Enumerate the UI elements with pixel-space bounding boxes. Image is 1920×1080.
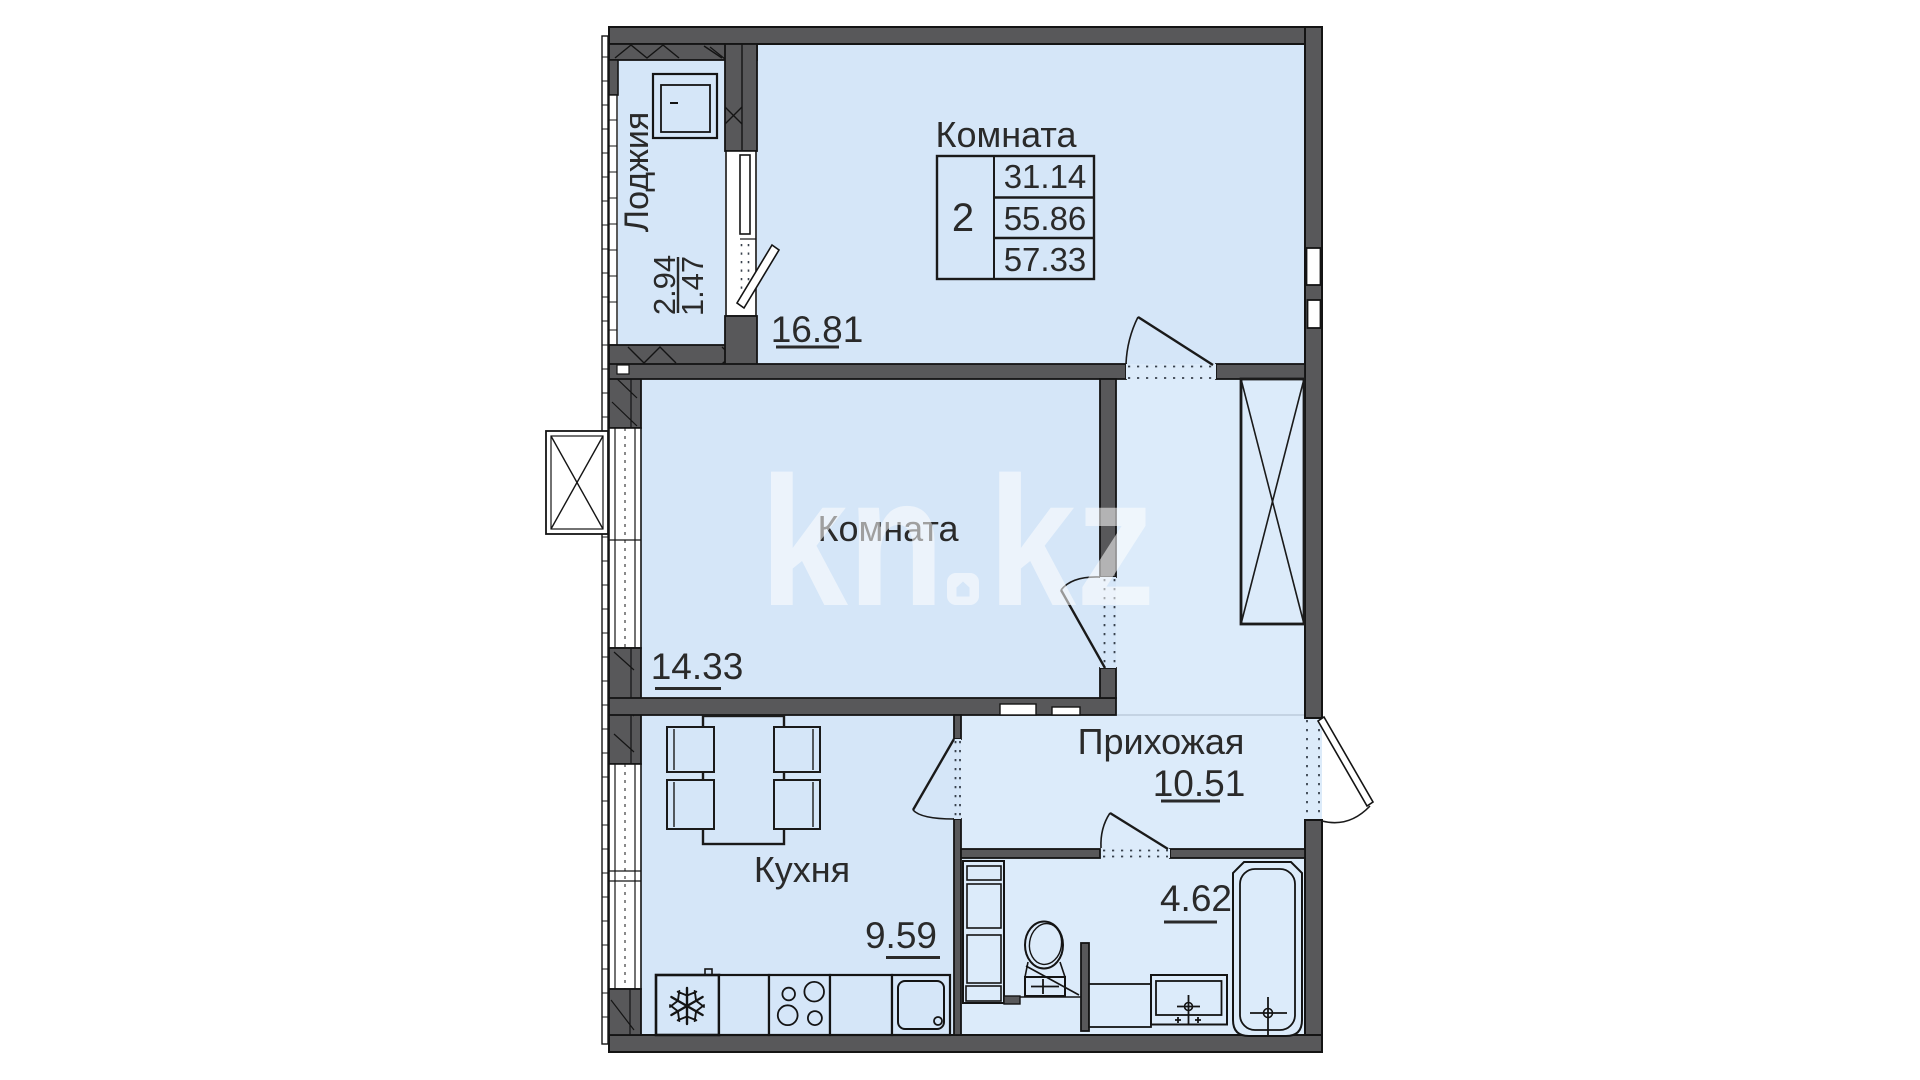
svg-text:Кухня: Кухня — [754, 849, 850, 890]
svg-text:10.51: 10.51 — [1153, 763, 1246, 804]
svg-text:31.14: 31.14 — [1004, 158, 1087, 195]
svg-text:9.59: 9.59 — [865, 915, 937, 956]
svg-text:Лоджия: Лоджия — [618, 112, 656, 232]
svg-text:55.86: 55.86 — [1004, 200, 1087, 237]
svg-text:4.62: 4.62 — [1160, 878, 1232, 919]
svg-text:1.47: 1.47 — [675, 256, 710, 316]
svg-text:Комната: Комната — [936, 114, 1078, 155]
svg-text:2: 2 — [952, 196, 974, 240]
svg-text:57.33: 57.33 — [1004, 241, 1087, 278]
svg-text:kn.kz: kn.kz — [760, 438, 1155, 644]
svg-text:16.81: 16.81 — [771, 309, 864, 350]
svg-text:14.33: 14.33 — [651, 646, 744, 687]
svg-text:Прихожая: Прихожая — [1078, 721, 1245, 762]
